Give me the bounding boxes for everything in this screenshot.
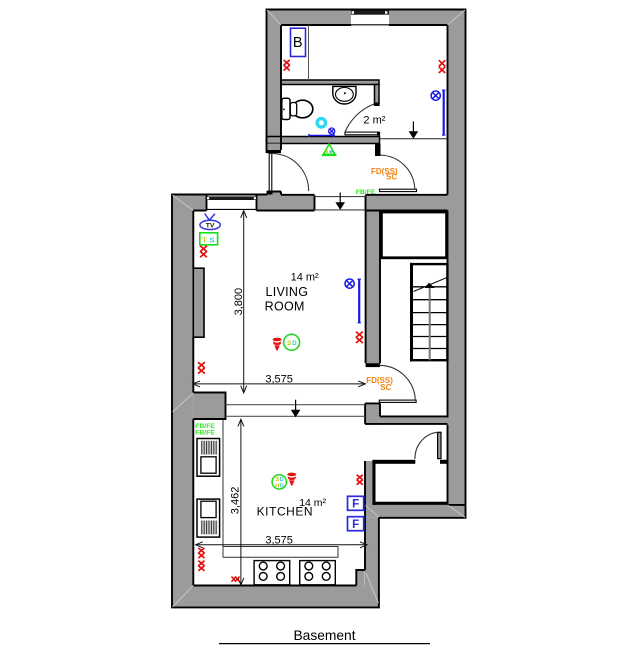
svg-text:TV: TV bbox=[206, 222, 215, 229]
svg-text:3,800: 3,800 bbox=[233, 288, 245, 316]
svg-text:D: D bbox=[292, 340, 297, 347]
svg-text:F: F bbox=[352, 519, 359, 531]
svg-text:SC: SC bbox=[380, 383, 391, 392]
svg-text:KITCHEN: KITCHEN bbox=[257, 505, 314, 519]
svg-text:SC: SC bbox=[386, 173, 397, 182]
svg-text:F: F bbox=[352, 499, 359, 511]
svg-text:S: S bbox=[209, 235, 214, 244]
svg-text:3,575: 3,575 bbox=[265, 534, 293, 546]
svg-text:Basement: Basement bbox=[293, 628, 355, 643]
svg-text:ROOM: ROOM bbox=[265, 300, 305, 314]
svg-text:T: T bbox=[202, 235, 207, 244]
svg-text:FB/FE: FB/FE bbox=[356, 189, 376, 196]
svg-text:D: D bbox=[280, 477, 284, 483]
svg-text:H: H bbox=[275, 484, 279, 490]
svg-text:3,462: 3,462 bbox=[230, 487, 242, 515]
svg-text:14 m²: 14 m² bbox=[291, 272, 319, 284]
svg-text:LIVING: LIVING bbox=[266, 285, 309, 299]
svg-text:D: D bbox=[280, 484, 284, 490]
svg-text:3,575: 3,575 bbox=[265, 374, 293, 386]
svg-text:B: B bbox=[293, 35, 303, 51]
svg-text:2 m²: 2 m² bbox=[363, 115, 385, 127]
svg-text:FB/FE: FB/FE bbox=[195, 429, 215, 436]
